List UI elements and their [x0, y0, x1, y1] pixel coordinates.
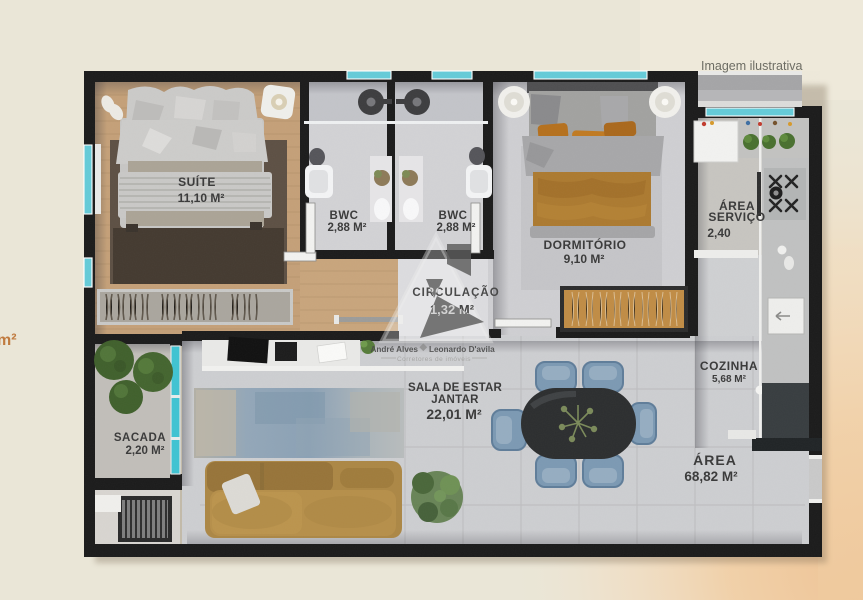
svg-text:André Alves: André Alves — [371, 345, 419, 354]
svg-text:2,40: 2,40 — [707, 226, 731, 240]
svg-text:ÁREA: ÁREA — [693, 452, 737, 468]
svg-text:JANTAR: JANTAR — [431, 394, 479, 406]
svg-text:2,88 M²: 2,88 M² — [437, 222, 476, 234]
svg-text:Imagem ilustrativa: Imagem ilustrativa — [701, 59, 802, 73]
svg-text:68,82 M²: 68,82 M² — [684, 469, 738, 484]
svg-text:SACADA: SACADA — [114, 432, 166, 444]
svg-text:DORMITÓRIO: DORMITÓRIO — [544, 237, 627, 252]
svg-text:m²: m² — [0, 332, 17, 349]
svg-text:22,01 M²: 22,01 M² — [426, 406, 482, 422]
svg-text:11,10 M²: 11,10 M² — [178, 191, 225, 205]
svg-text:SALA DE ESTAR: SALA DE ESTAR — [408, 382, 502, 394]
svg-text:BWC: BWC — [439, 210, 468, 222]
svg-text:SERVIÇO: SERVIÇO — [708, 210, 765, 224]
svg-text:9,10 M²: 9,10 M² — [564, 252, 605, 266]
svg-text:BWC: BWC — [330, 210, 359, 222]
svg-text:5,68 M²: 5,68 M² — [712, 374, 747, 385]
svg-text:Corretores de imóveis: Corretores de imóveis — [397, 356, 471, 363]
svg-text:CIRCULAÇÃO: CIRCULAÇÃO — [412, 286, 499, 299]
svg-text:2,88 M²: 2,88 M² — [328, 222, 367, 234]
svg-text:SUÍTE: SUÍTE — [178, 174, 216, 189]
svg-text:COZINHA: COZINHA — [700, 359, 758, 373]
svg-text:2,20 M²: 2,20 M² — [126, 445, 165, 457]
svg-text:Leonardo D'avila: Leonardo D'avila — [429, 345, 495, 354]
